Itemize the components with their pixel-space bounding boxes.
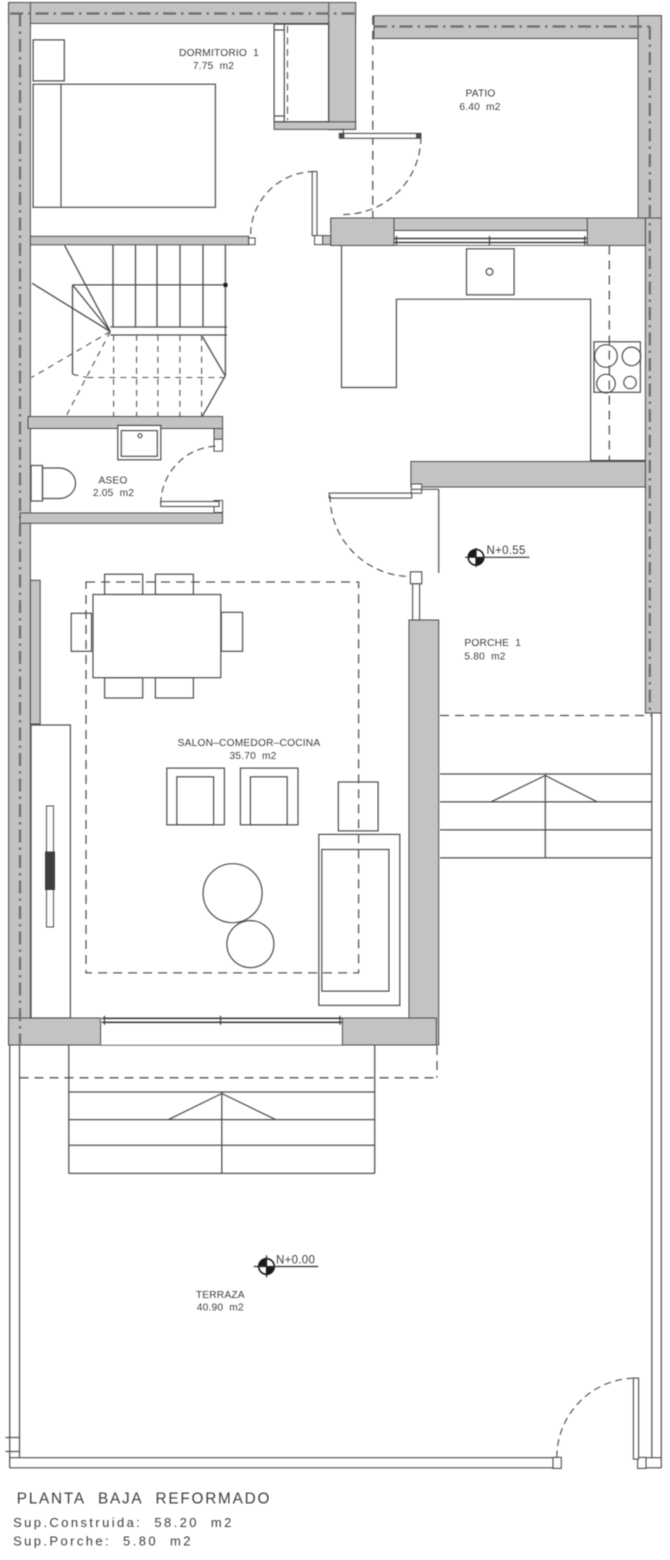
svg-text:40.90 m2: 40.90 m2 <box>197 1302 244 1313</box>
svg-text:2.05 m2: 2.05 m2 <box>93 488 134 499</box>
svg-text:7.75 m2: 7.75 m2 <box>193 61 234 72</box>
svg-text:PLANTA BAJA REFORMADO: PLANTA BAJA REFORMADO <box>17 1491 271 1508</box>
svg-text:35.70 m2: 35.70 m2 <box>229 751 276 762</box>
svg-text:SALON–COMEDOR–COCINA: SALON–COMEDOR–COCINA <box>178 738 321 749</box>
svg-text:PATIO: PATIO <box>465 89 495 100</box>
svg-text:Sup.Construida: 58.20 m2: Sup.Construida: 58.20 m2 <box>13 1515 234 1530</box>
svg-text:DORMITORIO 1: DORMITORIO 1 <box>179 48 259 59</box>
svg-text:N+0.00: N+0.00 <box>276 1255 315 1267</box>
svg-text:TERRAZA: TERRAZA <box>196 1290 245 1301</box>
svg-text:6.40 m2: 6.40 m2 <box>459 102 500 113</box>
svg-text:N+0.55: N+0.55 <box>487 545 526 557</box>
svg-text:ASEO: ASEO <box>98 476 127 487</box>
svg-text:5.80 m2: 5.80 m2 <box>464 652 505 663</box>
svg-text:Sup.Porche: 5.80 m2: Sup.Porche: 5.80 m2 <box>13 1534 193 1549</box>
svg-text:PORCHE 1: PORCHE 1 <box>464 638 521 649</box>
